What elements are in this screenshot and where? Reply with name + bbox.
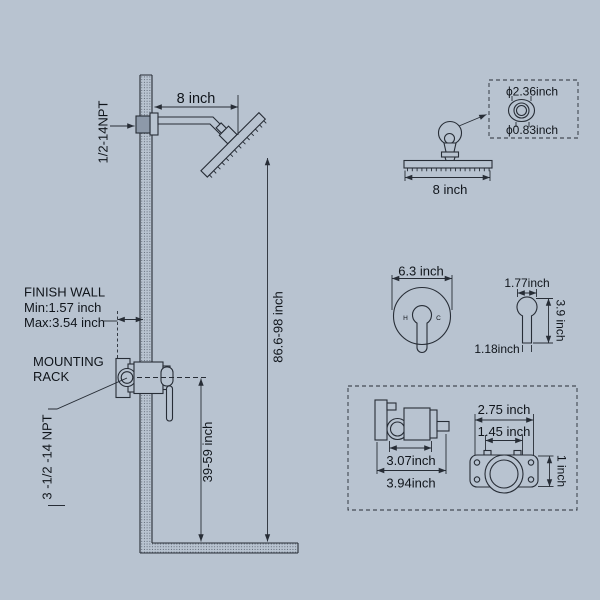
plate-height-label: 1 inch (555, 455, 569, 487)
joint-inner-diameter-label: ϕ0.83inch (506, 123, 558, 137)
shower-arm (158, 117, 226, 135)
npt-connector (136, 116, 150, 133)
trim-diameter-label: 6.3 inch (398, 264, 444, 279)
rough-valve-side-view: 3.07inch 3.94inch (375, 400, 449, 491)
diagram-canvas: 8 inch 1/2-14NPT FINISH WALL Min:1.57 in… (0, 0, 600, 600)
handle-width-label: 1.77inch (504, 276, 549, 290)
finish-wall-note: FINISH WALL Min:1.57 inch Max:3.54 inch (24, 285, 143, 362)
valve-height-dimension: 39-59 inch (200, 379, 215, 542)
plate-width-label: 2.75 inch (478, 402, 531, 417)
shower-arm-assembly (136, 99, 268, 180)
joint-detail-box: ϕ2.36inch ϕ0.83inch (489, 80, 578, 138)
arm-npt-label: 1/2-14NPT (96, 101, 111, 164)
rough-in-valve-box: 3.07inch 3.94inch 2.75 inch 1.45 inch (348, 386, 577, 510)
trim-handle (412, 306, 431, 353)
arm-length-label: 8 inch (177, 91, 216, 107)
valve-cartridge-opening (485, 455, 523, 493)
handle-profile (517, 297, 537, 343)
valve-npt-label: 3 -1/2 -14 NPT (40, 414, 55, 499)
arm-flange (150, 113, 158, 135)
shower-head-left (187, 99, 268, 180)
valve-trim-front: 6.3 inch H C (392, 264, 452, 353)
rough-body-width-label: 3.07inch (386, 453, 435, 468)
wall-valve-assembly (116, 359, 209, 422)
head-width-label: 8 inch (433, 182, 468, 197)
rough-total-width-label: 3.94inch (386, 476, 435, 491)
finish-wall-min: Min:1.57 inch (24, 300, 101, 315)
rough-valve-front-view: 2.75 inch 1.45 inch 1 inch (470, 402, 569, 493)
head-disc (404, 161, 492, 169)
valve-height-label: 39-59 inch (200, 422, 215, 483)
shower-dimension-diagram: 8 inch 1/2-14NPT FINISH WALL Min:1.57 in… (0, 0, 600, 600)
hot-label: H (403, 315, 408, 322)
trim-plate (394, 288, 451, 345)
arm-npt-callout: 1/2-14NPT (96, 101, 135, 164)
handle-side-view: 1.77inch 3.9 inch 1.18inch (474, 276, 567, 356)
shower-head-top-view: 8 inch (404, 115, 492, 198)
mounting-rack-label-1: MOUNTING (33, 354, 104, 369)
joint-outer-diameter-label: ϕ2.36inch (506, 85, 558, 99)
head-height-label: 86.6-98 inch (271, 291, 286, 363)
mounting-rack-note: MOUNTING RACK 3 -1/2 -14 NPT (33, 354, 127, 506)
mounting-rack-label-2: RACK (33, 369, 69, 384)
valve-handle-knob (161, 367, 173, 386)
head-height-dimension: 86.6-98 inch (268, 158, 286, 542)
head-nozzles (408, 168, 490, 171)
valve-handle-lever (167, 386, 173, 421)
finish-wall-title: FINISH WALL (24, 285, 105, 300)
handle-height-label: 3.9 inch (554, 299, 568, 341)
cold-label: C (436, 315, 441, 322)
handle-base-label: 1.18inch (474, 342, 519, 356)
finish-wall-max: Max:3.54 inch (24, 315, 105, 330)
